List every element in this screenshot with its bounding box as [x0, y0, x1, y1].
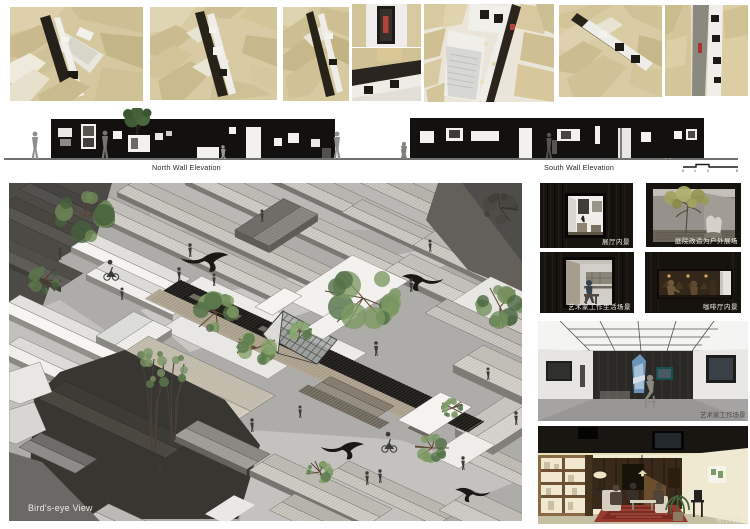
svg-text:0: 0 [682, 169, 684, 173]
svg-text:Bird's-eye View: Bird's-eye View [28, 503, 93, 513]
svg-text:2: 2 [707, 169, 709, 173]
svg-text:1: 1 [694, 169, 696, 173]
svg-text:餐厅内景: 餐厅内景 [716, 515, 743, 524]
svg-text:5: 5 [736, 169, 738, 173]
svg-text:艺术家工作场景: 艺术家工作场景 [700, 410, 746, 419]
